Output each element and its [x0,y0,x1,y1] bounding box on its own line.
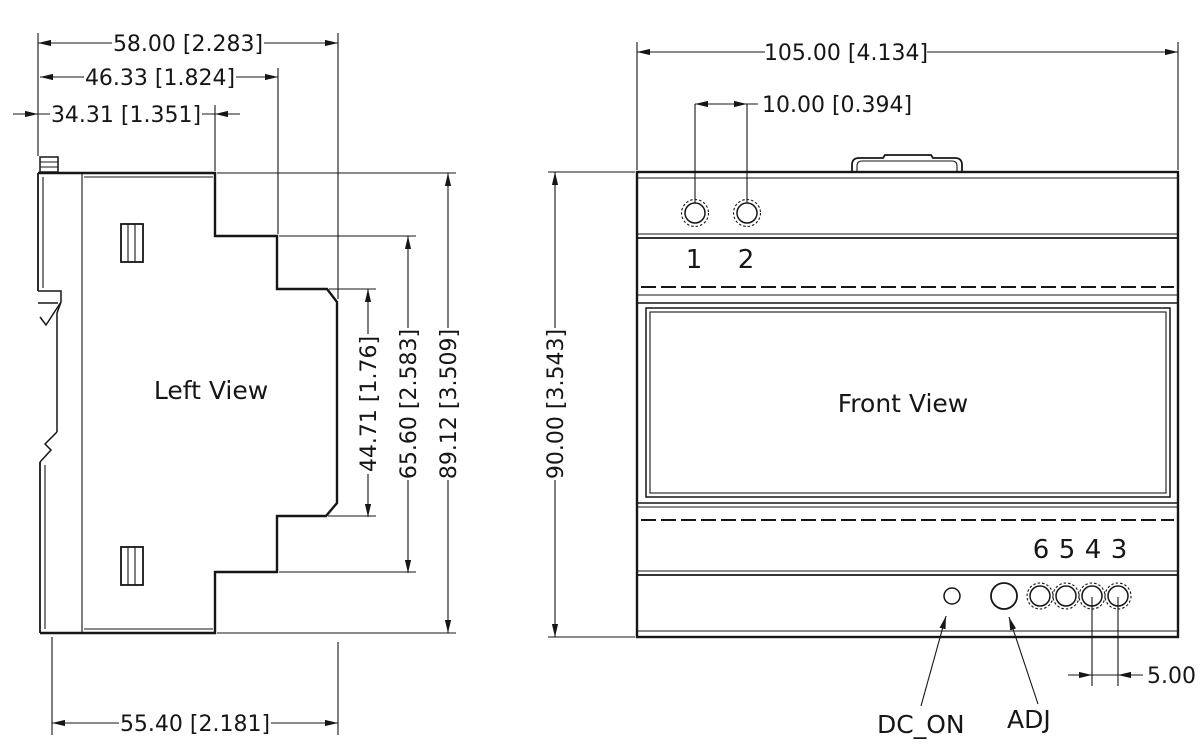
technical-drawing-page: Left View 58.00 [2.283] 46.33 [1.824] 34… [0,0,1200,755]
terminal-label-5: 5 [1059,535,1076,565]
dim-55-text: 55.40 [2.181] [120,712,270,737]
adj-label: ADJ [1007,705,1051,734]
dim-34-text: 34.31 [1.351] [51,103,201,128]
terminal-screw-1 [682,200,709,227]
adj-leader-arrow [1009,617,1038,704]
dim-105-text: 105.00 [4.134] [764,41,928,66]
terminal-label-1: 1 [686,245,703,275]
dim-58-text: 58.00 [2.283] [113,32,263,57]
extension-lines-5 [1092,597,1118,686]
terminal-label-6: 6 [1033,535,1050,565]
front-view-label: Front View [838,389,969,418]
dimension-drawing-canvas: Left View 58.00 [2.283] 46.33 [1.824] 34… [0,0,1200,755]
din-rail-clip [38,173,61,633]
terminal-screw-2 [734,200,761,227]
dim-89-text: 89.12 [3.509] [437,329,462,479]
dim-44-text: 44.71 [1.76] [357,336,382,472]
dim-5-text: 5.00 [1147,664,1196,689]
vent-grille-top [121,224,143,262]
vent-grille-bottom [121,547,143,585]
leader-lines-10 [695,104,758,203]
dc-on-leader-arrow [921,616,946,706]
dim-10-text: 10.00 [0.394] [762,93,912,118]
terminal-screw-6 [1027,583,1053,609]
mounting-tab [40,157,58,172]
left-view: Left View [38,157,337,633]
top-clip-bump [852,155,962,172]
adj-potentiometer-circle [991,583,1017,609]
dim-46-text: 46.33 [1.824] [85,66,235,91]
terminal-screw-5 [1053,583,1079,609]
dim-65-text: 65.60 [2.583] [397,329,422,479]
terminal-label-4: 4 [1085,535,1102,565]
terminal-label-2: 2 [738,245,755,275]
left-view-label: Left View [154,376,268,405]
dc-on-label: DC_ON [877,710,965,739]
terminal-label-3: 3 [1111,535,1128,565]
dc-on-led-circle [944,588,960,604]
front-view: 1 2 Front View 6 5 4 3 [637,155,1178,637]
dim-90-text: 90.00 [3.543] [544,329,569,479]
